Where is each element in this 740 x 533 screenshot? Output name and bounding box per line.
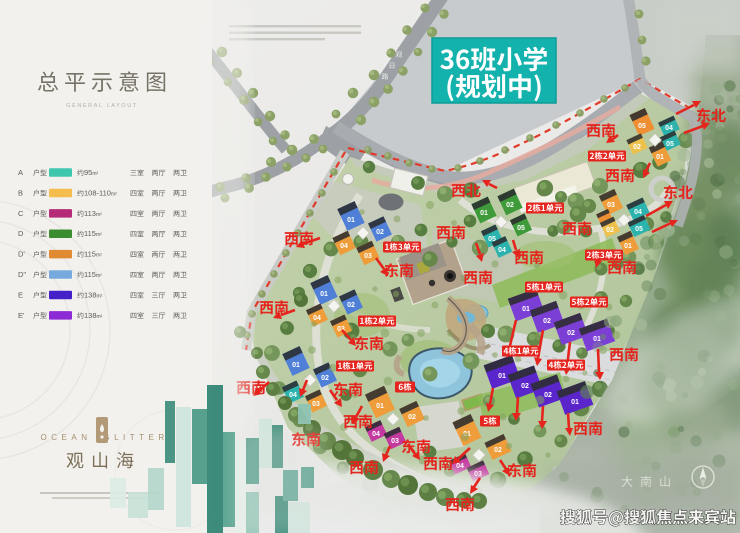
svg-text:04: 04 (340, 243, 348, 250)
svg-text:OCEAN: OCEAN (41, 433, 92, 442)
svg-text:05: 05 (635, 226, 643, 233)
svg-text:02: 02 (543, 318, 551, 325)
svg-text:05: 05 (517, 225, 525, 232)
svg-text:03: 03 (607, 202, 615, 209)
svg-text:04: 04 (634, 209, 642, 216)
svg-text:03: 03 (391, 438, 399, 445)
svg-text:01: 01 (498, 373, 506, 380)
svg-text:05: 05 (638, 123, 646, 130)
svg-text:03: 03 (312, 401, 320, 408)
svg-text:01: 01 (376, 403, 384, 410)
svg-text:04: 04 (456, 463, 464, 470)
svg-text:01: 01 (320, 291, 328, 298)
svg-text:02: 02 (606, 227, 614, 234)
svg-text:02: 02 (494, 447, 502, 454)
svg-text:02: 02 (321, 375, 329, 382)
svg-text:04: 04 (372, 431, 380, 438)
svg-text:E': E' (18, 311, 25, 320)
svg-text:02: 02 (521, 383, 529, 390)
svg-text:02: 02 (347, 302, 355, 309)
svg-text:02: 02 (506, 202, 514, 209)
svg-text:02: 02 (633, 144, 641, 151)
svg-text:05: 05 (666, 141, 674, 148)
svg-text:04: 04 (498, 247, 506, 254)
svg-text:01: 01 (522, 306, 530, 313)
svg-text:01: 01 (656, 154, 664, 161)
svg-text:D: D (18, 229, 24, 238)
svg-text:C: C (18, 209, 24, 218)
svg-text:01: 01 (347, 217, 355, 224)
svg-text:04: 04 (289, 392, 297, 399)
svg-text:01: 01 (480, 210, 488, 217)
svg-text:04: 04 (313, 315, 321, 322)
svg-text:03: 03 (364, 253, 372, 260)
svg-text:D": D" (18, 270, 26, 279)
svg-text:A: A (18, 168, 23, 177)
svg-text:B: B (18, 188, 23, 197)
svg-text:GENERAL LAYOUT: GENERAL LAYOUT (66, 103, 138, 109)
svg-text:01: 01 (571, 399, 579, 406)
svg-text:D': D' (18, 250, 25, 259)
svg-text:02: 02 (376, 229, 384, 236)
svg-text:04: 04 (665, 125, 673, 132)
svg-text:GLITTER: GLITTER (103, 433, 168, 442)
svg-text:02: 02 (408, 414, 416, 421)
svg-text:02: 02 (544, 392, 552, 399)
svg-text:01: 01 (624, 243, 632, 250)
svg-text:E: E (18, 290, 23, 299)
svg-text:02: 02 (567, 330, 575, 337)
svg-text:01: 01 (292, 362, 300, 369)
